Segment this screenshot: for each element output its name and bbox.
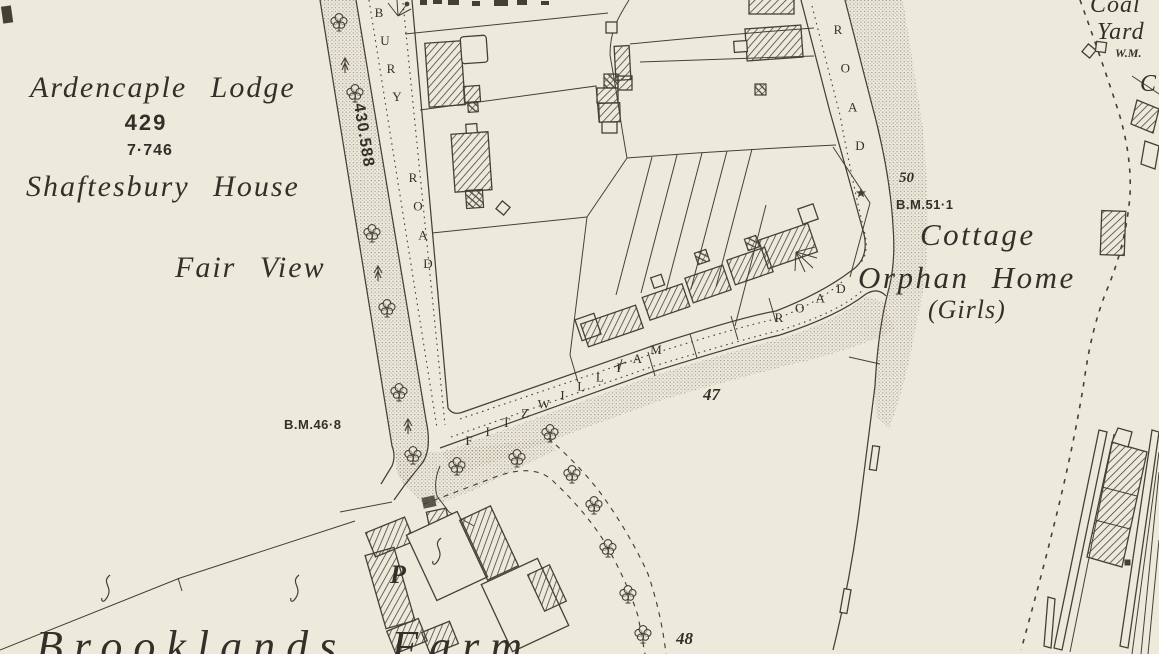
label-weighing-machine: W.M. [1115, 46, 1141, 60]
east-road-shading [845, 0, 928, 428]
railway-sidings [1044, 428, 1159, 654]
label-bury-road-word2: ROAD [409, 170, 433, 271]
label-plot-number-429: 429 [125, 110, 168, 135]
os-map-extract: Ardencaple Lodge 429 7·746 Shaftesbury H… [0, 0, 1159, 654]
label-c-partial: C [1140, 71, 1157, 97]
benchmark-star-icon [856, 188, 866, 197]
label-yard: Yard [1097, 19, 1145, 45]
brace-symbol-icon [102, 575, 110, 601]
buildings-main-block [425, 0, 803, 215]
bury-road-tree-verge-shading [320, 0, 428, 486]
label-benchmark-46-8: B.M.46·8 [284, 417, 341, 432]
deciduous-tree-icon [564, 466, 580, 483]
fitzwilliam-road-south-shading [442, 296, 895, 476]
label-bury-road-word1: BURY [375, 5, 403, 104]
label-shaftesbury-house: Shaftesbury House [26, 170, 300, 203]
label-acreage-7-746: 7·746 [127, 142, 173, 159]
cut-off-building-mark [1, 5, 13, 23]
brace-symbol-icon [291, 575, 299, 601]
label-post-office: P [389, 560, 407, 589]
deciduous-tree-icon [586, 497, 602, 514]
buildings-terrace-row [575, 204, 818, 347]
label-fair-view: Fair View [174, 251, 326, 284]
flagstaff-icon [388, 0, 411, 16]
deciduous-tree-icon [635, 626, 651, 643]
label-coal: Coal [1090, 0, 1141, 18]
deciduous-tree-icon [620, 586, 636, 603]
label-brooklands-farm: Brooklands Farm [36, 622, 533, 654]
label-orphan-home: Orphan Home [858, 260, 1076, 295]
label-cottage: Cottage [920, 217, 1036, 252]
label-road-number-48: 48 [675, 629, 694, 648]
label-road-number-47: 47 [702, 385, 722, 404]
map-canvas: Ardencaple Lodge 429 7·746 Shaftesbury H… [0, 0, 1159, 654]
label-ardencaple-lodge: Ardencaple Lodge [28, 71, 296, 104]
label-girls: (Girls) [928, 295, 1006, 324]
cut-off-text-marks [420, 0, 549, 6]
label-spot-height-50: 50 [899, 170, 915, 186]
label-benchmark-51-1: B.M.51·1 [896, 197, 953, 212]
